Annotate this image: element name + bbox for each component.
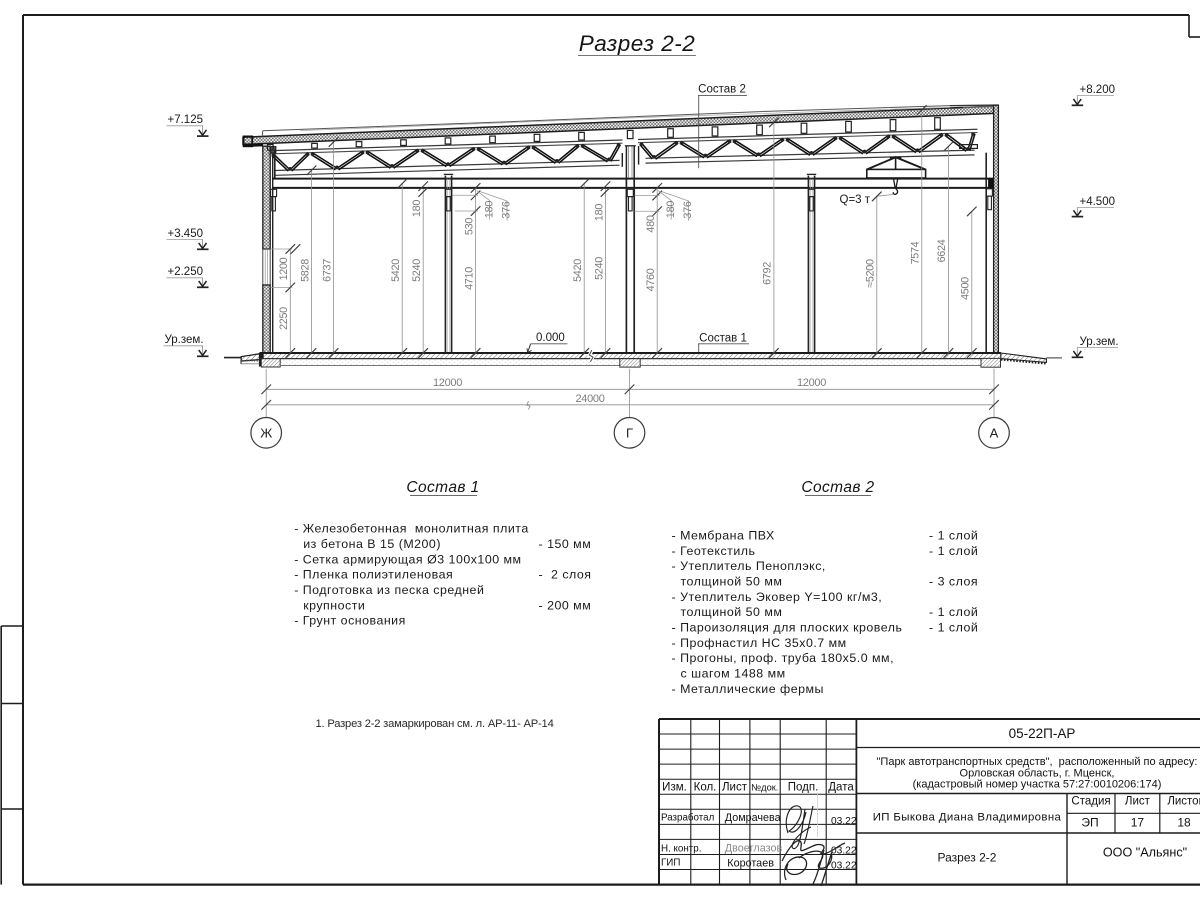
svg-text:+7.125: +7.125: [168, 114, 204, 126]
svg-text:6737: 6737: [321, 259, 333, 282]
svg-text:Орловская область, г. Мценск,: Орловская область, г. Мценск,: [960, 767, 1115, 779]
svg-text:- 150 мм: - 150 мм: [539, 537, 592, 551]
svg-text:Н. контр.: Н. контр.: [661, 843, 701, 854]
svg-text:крупности: крупности: [303, 598, 365, 612]
svg-text:376: 376: [682, 201, 694, 218]
svg-text:24000: 24000: [575, 393, 604, 405]
svg-text:- Грунт основания: - Грунт основания: [294, 614, 406, 628]
svg-text:Ж: Ж: [260, 425, 272, 440]
svg-text:0.000: 0.000: [536, 332, 565, 344]
svg-text:- 1 слой: - 1 слой: [929, 605, 978, 619]
svg-text:4710: 4710: [463, 267, 475, 290]
svg-text:Ур.зем.: Ур.зем.: [165, 334, 204, 346]
svg-text:180: 180: [665, 201, 677, 218]
svg-text:5420: 5420: [390, 259, 402, 282]
svg-text:Лист: Лист: [722, 782, 748, 794]
svg-text:Подп.: Подп.: [788, 782, 819, 794]
svg-text:из бетона В 15 (М200): из бетона В 15 (М200): [303, 537, 441, 551]
svg-text:Состав 2: Состав 2: [801, 479, 874, 496]
svg-text:- Металлические фермы: - Металлические фермы: [672, 682, 824, 696]
svg-text:Лист: Лист: [1125, 796, 1151, 808]
svg-text:ИП Быкова Диана Владимировна: ИП Быкова Диана Владимировна: [873, 811, 1062, 823]
svg-text:6624: 6624: [936, 239, 948, 262]
svg-text:480: 480: [645, 215, 657, 232]
svg-text:- 1 слой: - 1 слой: [929, 544, 978, 558]
svg-text:5240: 5240: [411, 259, 423, 282]
svg-text:376: 376: [501, 201, 513, 218]
svg-text:Коротаев: Коротаев: [727, 857, 774, 869]
svg-text:- 1 слой: - 1 слой: [929, 528, 978, 542]
svg-text:"Парк автотранспортных средств: "Парк автотранспортных средств", располо…: [877, 756, 1198, 768]
svg-text:толщиной 50 мм: толщиной 50 мм: [681, 605, 783, 619]
svg-text:180: 180: [593, 204, 605, 221]
svg-text:Стадия: Стадия: [1071, 796, 1110, 808]
svg-text:- Прогоны, проф. труба 180х5.0: - Прогоны, проф. труба 180х5.0 мм,: [672, 651, 895, 665]
svg-text:03.22: 03.22: [831, 860, 857, 871]
svg-text:5240: 5240: [593, 257, 605, 280]
svg-text:Ур.зем.: Ур.зем.: [1080, 336, 1119, 348]
svg-text:+4.500: +4.500: [1080, 196, 1116, 208]
svg-text:Листов: Листов: [1167, 796, 1200, 808]
svg-text:1. Разрез 2-2 замаркирован см.: 1. Разрез 2-2 замаркирован см. л. АР-11-…: [316, 718, 554, 730]
svg-text:180: 180: [484, 201, 496, 218]
svg-text:- 2 слоя: - 2 слоя: [539, 568, 592, 582]
svg-text:12000: 12000: [433, 377, 462, 389]
svg-text:Двоеглазов: Двоеглазов: [725, 843, 783, 855]
svg-text:1200: 1200: [278, 257, 290, 280]
svg-text:- Железобетонная монолитная п: - Железобетонная монолитная плита: [294, 522, 529, 536]
svg-text:- Мембрана ПВХ: - Мембрана ПВХ: [672, 528, 775, 542]
svg-text:Кол.: Кол.: [694, 782, 717, 794]
svg-text:+3.450: +3.450: [168, 228, 204, 240]
svg-text:05-22П-АР: 05-22П-АР: [1009, 726, 1076, 741]
svg-text:03.22: 03.22: [831, 846, 857, 857]
svg-text:- Пленка полиэтиленовая: - Пленка полиэтиленовая: [294, 568, 453, 582]
svg-text:Домрачева: Домрачева: [725, 812, 781, 824]
svg-text:- Сетка армирующая Ø3 100х100: - Сетка армирующая Ø3 100х100 мм: [294, 552, 521, 566]
svg-text:толщиной 50 мм: толщиной 50 мм: [681, 575, 783, 589]
svg-text:с шагом 1488 мм: с шагом 1488 мм: [681, 667, 786, 681]
svg-text:А: А: [990, 425, 999, 440]
svg-text:ГИП: ГИП: [661, 858, 680, 869]
svg-text:2250: 2250: [278, 307, 290, 330]
svg-text:Изм.: Изм.: [662, 782, 687, 794]
svg-text:№док.: №док.: [751, 782, 778, 792]
svg-text:Состав 2: Состав 2: [698, 84, 746, 96]
svg-text:5828: 5828: [299, 259, 311, 282]
svg-text:6792: 6792: [762, 262, 774, 285]
svg-text:Г: Г: [626, 425, 633, 440]
svg-text:7574: 7574: [910, 241, 922, 264]
svg-text:18: 18: [1177, 815, 1191, 829]
svg-text:(кадастровый номер участка 57:: (кадастровый номер участка 57:27:0010206…: [913, 779, 1162, 791]
svg-text:- Подготовка из песка средней: - Подготовка из песка средней: [294, 583, 484, 597]
svg-text:- Геотекстиль: - Геотекстиль: [672, 544, 756, 558]
svg-text:Разрез 2-2: Разрез 2-2: [938, 850, 997, 864]
svg-text:- Утеплитель Пеноплэкс,: - Утеплитель Пеноплэкс,: [672, 559, 826, 573]
svg-text:ООО "Альянс": ООО "Альянс": [1103, 845, 1187, 859]
svg-text:- 1 слой: - 1 слой: [929, 621, 978, 635]
svg-text:+2.250: +2.250: [168, 266, 204, 278]
svg-text:Q=3 т: Q=3 т: [840, 194, 871, 206]
svg-text:- 3 слоя: - 3 слоя: [929, 575, 978, 589]
svg-text:12000: 12000: [797, 377, 826, 389]
svg-text:530: 530: [463, 218, 475, 235]
svg-text:+8.200: +8.200: [1080, 84, 1116, 96]
svg-text:180: 180: [411, 200, 423, 217]
svg-text:Разработал: Разработал: [661, 813, 715, 824]
svg-text:- Пароизоляция для плоских кро: - Пароизоляция для плоских кровель: [672, 621, 903, 635]
svg-text:5420: 5420: [572, 259, 584, 282]
svg-text:17: 17: [1131, 815, 1145, 829]
svg-text:- Профнастил НС 35х0.7 мм: - Профнастил НС 35х0.7 мм: [672, 636, 847, 650]
svg-text:ЭП: ЭП: [1081, 815, 1098, 829]
svg-text:4500: 4500: [960, 277, 972, 300]
svg-text:Состав 1: Состав 1: [406, 479, 479, 496]
svg-text:Состав 1: Состав 1: [699, 332, 747, 344]
svg-text:4760: 4760: [645, 268, 657, 291]
svg-text:Разрез 2-2: Разрез 2-2: [579, 31, 696, 56]
svg-text:Дата: Дата: [828, 782, 854, 794]
svg-text:03.22: 03.22: [831, 816, 857, 827]
svg-text:≈5200: ≈5200: [865, 259, 877, 288]
svg-text:- 200 мм: - 200 мм: [539, 598, 592, 612]
svg-text:- Утеплитель Эковер Y=100 кг/м: - Утеплитель Эковер Y=100 кг/м3,: [672, 590, 883, 604]
